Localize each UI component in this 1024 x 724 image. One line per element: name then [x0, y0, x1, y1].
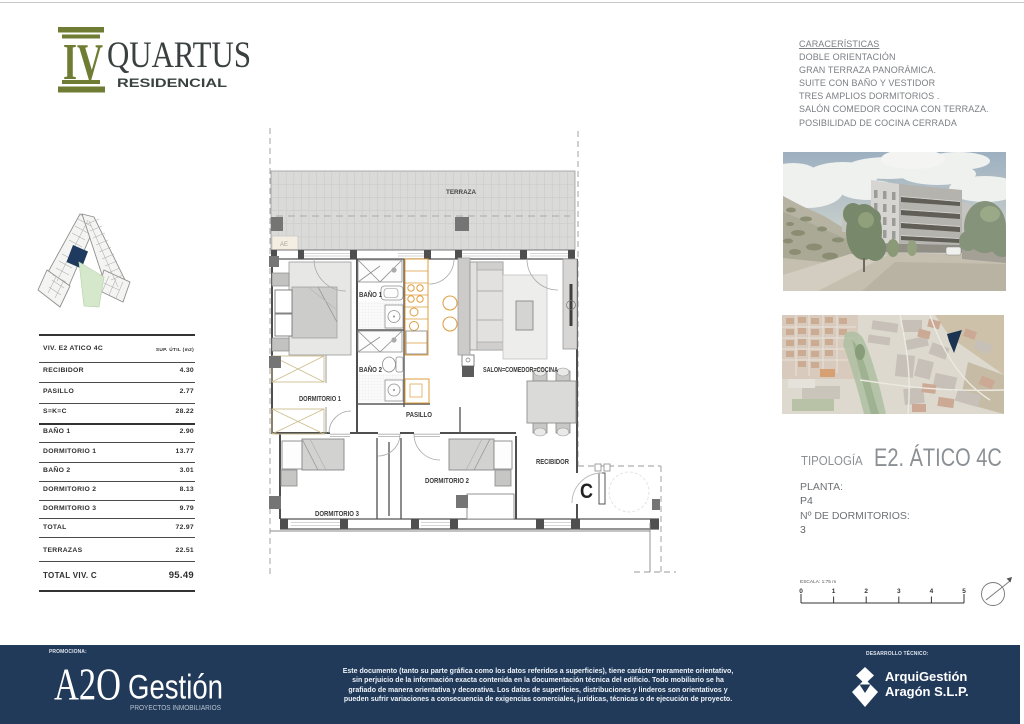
svg-text:2: 2: [864, 588, 868, 595]
svg-text:RECIBIDOR: RECIBIDOR: [536, 459, 569, 466]
svg-text:IV: IV: [63, 34, 103, 91]
svg-text:C: C: [580, 480, 593, 503]
svg-text:ESCALA: 1:75 m: ESCALA: 1:75 m: [800, 579, 836, 585]
svg-text:DORMITORIO 2: DORMITORIO 2: [425, 478, 469, 485]
svg-text:SALON=COMEDOR=COCINA: SALON=COMEDOR=COCINA: [483, 367, 558, 374]
svg-text:QUARTUS: QUARTUS: [107, 35, 251, 76]
svg-text:DORMITORIO 3: DORMITORIO 3: [315, 511, 359, 518]
svg-text:RESIDENCIAL: RESIDENCIAL: [117, 78, 227, 90]
svg-text:4: 4: [930, 588, 934, 595]
svg-text:0: 0: [799, 588, 803, 595]
svg-text:A2O: A2O: [54, 660, 121, 710]
svg-text:BAÑO 2: BAÑO 2: [359, 365, 382, 374]
svg-text:DORMITORIO 1: DORMITORIO 1: [299, 396, 341, 403]
svg-text:PROYECTOS INMOBILIARIOS: PROYECTOS INMOBILIARIOS: [130, 705, 221, 712]
svg-text:1: 1: [832, 588, 836, 595]
svg-text:AE: AE: [280, 242, 288, 248]
svg-text:Gestión: Gestión: [128, 669, 223, 707]
svg-text:TERRAZA: TERRAZA: [446, 189, 476, 196]
svg-text:BAÑO 1: BAÑO 1: [359, 290, 382, 299]
svg-text:PASILLO: PASILLO: [406, 412, 432, 419]
svg-text:5: 5: [962, 588, 966, 595]
svg-text:3: 3: [897, 588, 901, 595]
